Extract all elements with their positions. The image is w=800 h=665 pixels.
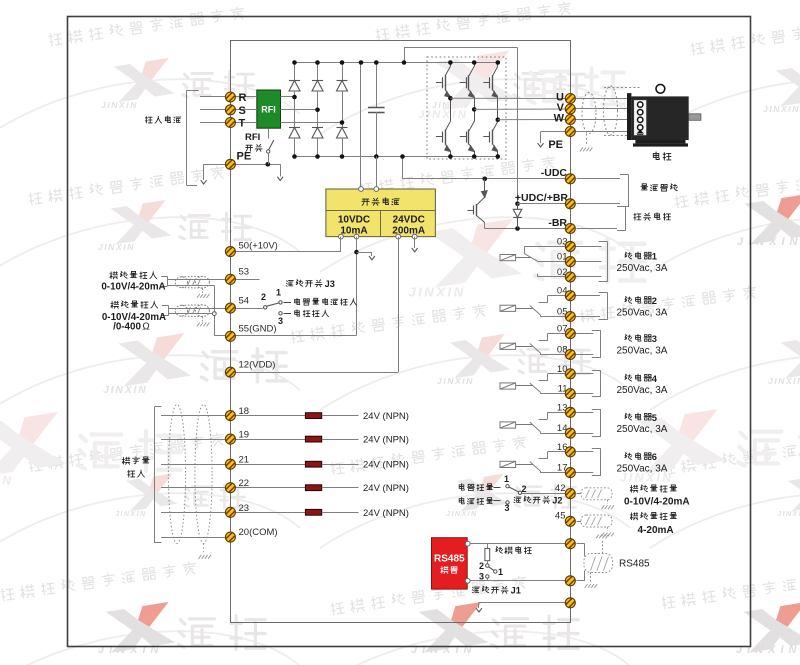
svg-text:RS485: RS485 bbox=[619, 559, 650, 570]
svg-text:+UDC/+BR: +UDC/+BR bbox=[515, 192, 569, 204]
svg-text:4: 4 bbox=[652, 373, 658, 384]
svg-text:S: S bbox=[239, 105, 246, 117]
svg-text:JINXIN: JINXIN bbox=[768, 376, 800, 386]
svg-text:24VDC: 24VDC bbox=[393, 215, 425, 226]
svg-text:2: 2 bbox=[479, 561, 484, 571]
svg-text:250Vac, 3A: 250Vac, 3A bbox=[617, 385, 668, 396]
svg-text:JINXIN: JINXIN bbox=[408, 284, 465, 299]
svg-text:3: 3 bbox=[652, 333, 657, 344]
svg-text:1: 1 bbox=[504, 474, 509, 484]
svg-text:18: 18 bbox=[239, 406, 250, 417]
svg-text:24V (NPN): 24V (NPN) bbox=[363, 435, 409, 446]
svg-text:24V (NPN): 24V (NPN) bbox=[363, 411, 409, 422]
svg-text:R: R bbox=[239, 92, 247, 104]
svg-text:JINXIN: JINXIN bbox=[98, 242, 135, 252]
svg-text:3: 3 bbox=[504, 503, 509, 513]
svg-text:10mA: 10mA bbox=[340, 226, 367, 237]
svg-text:RFI: RFI bbox=[261, 105, 276, 115]
svg-text:10VDC: 10VDC bbox=[338, 215, 370, 226]
svg-text:24V (NPN): 24V (NPN) bbox=[363, 483, 409, 494]
svg-text:4-20mA: 4-20mA bbox=[638, 525, 674, 536]
svg-text:T: T bbox=[239, 118, 246, 130]
svg-text:20(COM): 20(COM) bbox=[239, 527, 278, 538]
svg-text:J2: J2 bbox=[552, 496, 562, 506]
svg-text:24V (NPN): 24V (NPN) bbox=[363, 508, 409, 519]
svg-text:24V (NPN): 24V (NPN) bbox=[363, 460, 409, 471]
svg-text:0-10V/4-20mA: 0-10V/4-20mA bbox=[101, 281, 165, 292]
svg-text:J1: J1 bbox=[511, 586, 521, 596]
svg-text:23: 23 bbox=[239, 503, 250, 514]
svg-text:JINXIN: JINXIN bbox=[446, 509, 477, 518]
svg-text:21: 21 bbox=[239, 455, 250, 466]
svg-text:1: 1 bbox=[652, 251, 657, 262]
svg-text:3: 3 bbox=[479, 572, 484, 582]
svg-text:54: 54 bbox=[239, 296, 250, 307]
svg-text:42: 42 bbox=[555, 483, 566, 494]
svg-text:W: W bbox=[554, 113, 565, 125]
svg-text:JINXIN: JINXIN bbox=[115, 509, 146, 518]
svg-text:22: 22 bbox=[239, 478, 250, 489]
svg-text:J3: J3 bbox=[325, 279, 335, 289]
svg-text:PE: PE bbox=[237, 151, 252, 163]
svg-text:1: 1 bbox=[498, 567, 503, 577]
svg-text:JINXIN: JINXIN bbox=[437, 376, 474, 386]
svg-text:12(VDD): 12(VDD) bbox=[239, 360, 276, 371]
svg-text:-BR: -BR bbox=[548, 217, 567, 229]
svg-text:5: 5 bbox=[652, 412, 657, 423]
svg-text:250Vac, 3A: 250Vac, 3A bbox=[617, 464, 668, 475]
svg-text:JINXIN: JINXIN bbox=[777, 509, 800, 518]
svg-text:JINXIN: JINXIN bbox=[101, 100, 138, 110]
svg-text:6: 6 bbox=[652, 451, 657, 462]
svg-text:250Vac, 3A: 250Vac, 3A bbox=[617, 308, 668, 319]
svg-text:250Vac, 3A: 250Vac, 3A bbox=[617, 346, 668, 357]
svg-text:3: 3 bbox=[278, 316, 283, 326]
svg-text:45: 45 bbox=[555, 511, 566, 522]
svg-text:JINXIN: JINXIN bbox=[0, 474, 13, 488]
svg-text:-UDC: -UDC bbox=[541, 167, 568, 179]
svg-text:19: 19 bbox=[239, 430, 250, 441]
svg-text:250Vac, 3A: 250Vac, 3A bbox=[617, 263, 668, 274]
svg-text:PE: PE bbox=[548, 139, 563, 151]
svg-text:0-10V/4-20mA: 0-10V/4-20mA bbox=[624, 497, 690, 508]
svg-text:53: 53 bbox=[239, 267, 250, 278]
svg-text:2: 2 bbox=[521, 484, 526, 494]
svg-text:1: 1 bbox=[276, 288, 281, 298]
svg-text:50(+10V): 50(+10V) bbox=[239, 241, 278, 252]
svg-text:JINXIN: JINXIN bbox=[418, 109, 468, 121]
svg-text:JINXIN: JINXIN bbox=[737, 236, 800, 248]
svg-text:250Vac, 3A: 250Vac, 3A bbox=[617, 424, 668, 435]
svg-text:2: 2 bbox=[652, 295, 657, 306]
svg-text:/0-400: /0-400 bbox=[113, 322, 141, 333]
svg-text:RFI: RFI bbox=[245, 132, 260, 143]
svg-text:2: 2 bbox=[261, 292, 266, 302]
svg-text:55(GND): 55(GND) bbox=[239, 324, 277, 335]
svg-text:JINXIN: JINXIN bbox=[763, 104, 800, 114]
svg-text:RS485: RS485 bbox=[434, 554, 465, 565]
svg-text:JINXIN: JINXIN bbox=[103, 385, 147, 396]
svg-text:Ω: Ω bbox=[142, 322, 149, 333]
